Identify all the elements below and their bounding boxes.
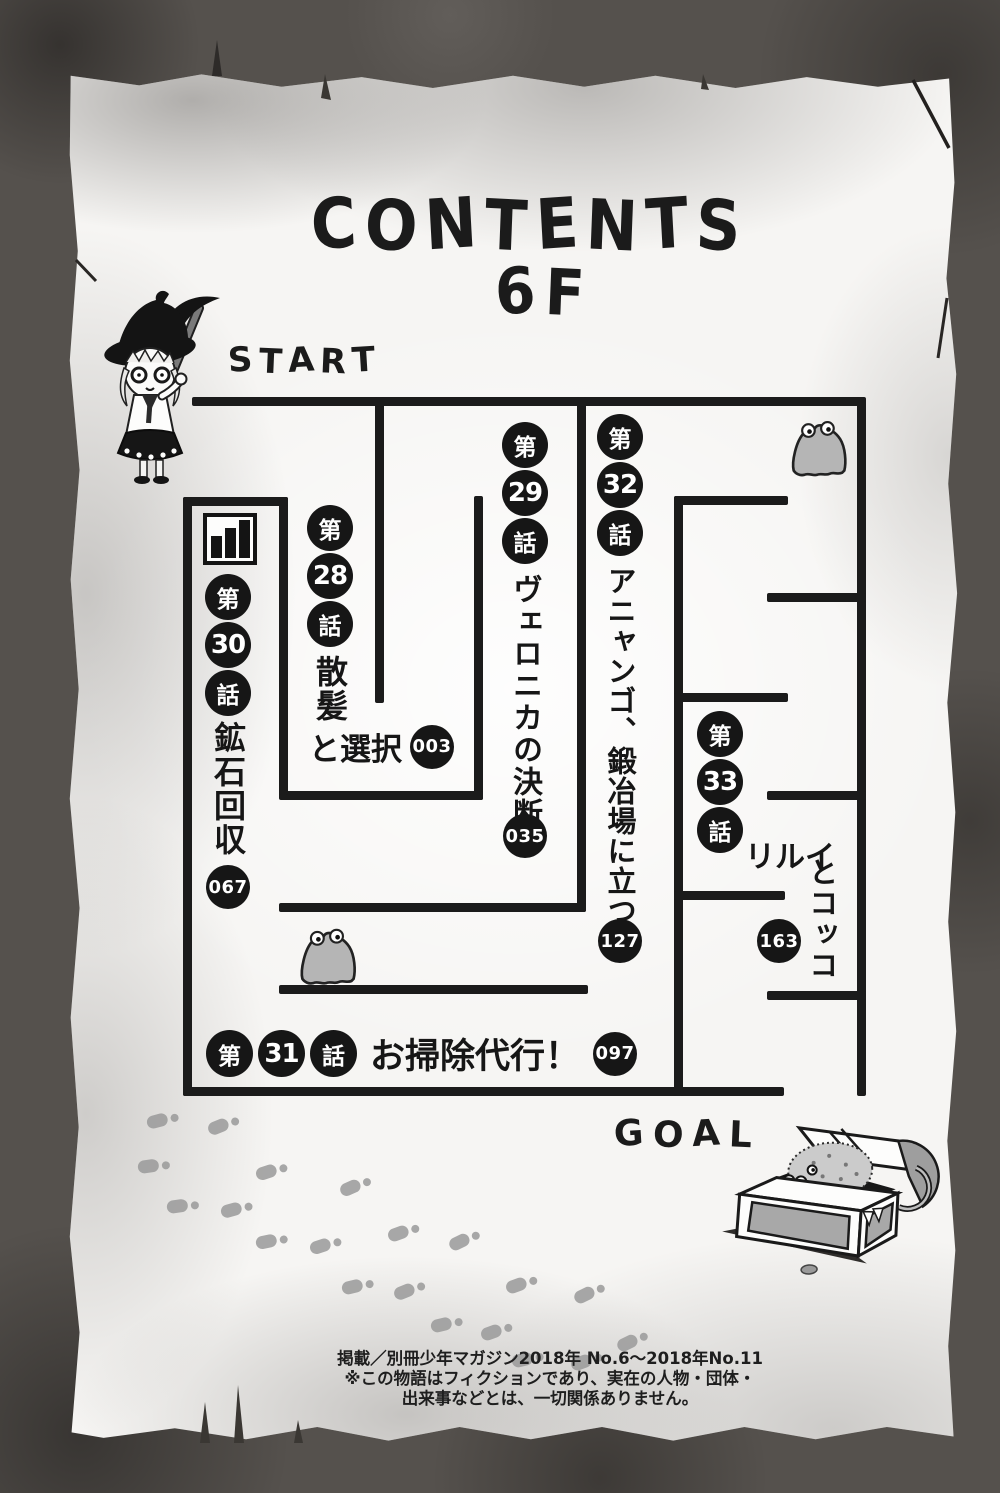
badge-number: 28 (307, 553, 353, 599)
badge-dai: 第 (307, 505, 353, 551)
fiction-disclaimer-line1: ※この物語はフィクションであり、実在の人物・団体・ (250, 1369, 850, 1389)
chapter-number-badges: 第 29 話 (502, 422, 548, 564)
chapter-number-badges: 第 30 話 (205, 574, 251, 716)
page-number-badge: 067 (206, 865, 250, 909)
badge-number: 30 (205, 622, 251, 668)
fiction-disclaimer-line2: 出来事などとは、一切関係ありません。 (250, 1389, 850, 1409)
maze-wall (279, 497, 288, 795)
slime-monster-icon (296, 926, 360, 988)
maze-wall (183, 1087, 784, 1096)
chapter-title-horizontal: と選択 (309, 724, 402, 769)
toc-entry-chapter-33[interactable]: 第 33 話 リルイ とコッコ 163 (697, 711, 857, 1031)
ore-bar (239, 520, 250, 558)
page-number-badge: 163 (757, 919, 801, 963)
badge-wa: 話 (205, 670, 251, 716)
ore-bar (211, 536, 222, 558)
chapter-title-vertical: 散髪 (314, 655, 346, 723)
badge-number: 32 (597, 462, 643, 508)
toc-entry-chapter-28[interactable]: 第 28 話 散髪 と選択 003 (305, 505, 475, 785)
contents-page: CONTENTS 6F START GOAL 第 28 話 散髪 と選択 003… (0, 0, 1000, 1493)
chapter-title-horizontal: お掃除代行！ (370, 1028, 580, 1079)
ore-bar (225, 528, 236, 558)
chapter-title-vertical: アニャンゴ、鍛冶場に立つ (605, 566, 634, 926)
page-number-badge: 127 (598, 919, 642, 963)
publication-note: 掲載／別冊少年マガジン2018年 No.6～2018年No.11 (250, 1349, 850, 1369)
disclaimer: 掲載／別冊少年マガジン2018年 No.6～2018年No.11 ※この物語はフ… (250, 1349, 850, 1408)
toc-entry-chapter-31[interactable]: 第 31 話 お掃除代行！ 097 (206, 1028, 637, 1079)
maze-wall (279, 791, 483, 800)
page-number-badge: 097 (593, 1032, 637, 1076)
maze-wall (279, 903, 586, 912)
toc-entry-chapter-29[interactable]: 第 29 話 ヴェロニカの決断 035 (500, 422, 560, 867)
maze-wall (577, 397, 586, 912)
badge-wa: 話 (310, 1030, 357, 1077)
chapter-title-vertical: ヴェロニカの決断 (509, 574, 539, 830)
maze-wall (674, 693, 788, 702)
maze-wall (474, 496, 483, 800)
chapter-title-vertical: 鉱石回収 (212, 721, 244, 857)
chapter-number-badges: 第 28 話 (307, 505, 353, 647)
start-label: START (228, 341, 381, 381)
badge-wa: 話 (597, 510, 643, 556)
maze-wall (183, 497, 192, 1096)
toc-entry-chapter-30[interactable]: 第 30 話 鉱石回収 067 (203, 513, 263, 918)
badge-dai: 第 (205, 574, 251, 620)
badge-number: 33 (697, 759, 743, 805)
chapter-number-badges: 第 33 話 (697, 711, 743, 853)
maze-wall (183, 497, 288, 506)
chapter-number-badges: 第 32 話 (597, 414, 643, 556)
badge-number: 31 (258, 1030, 305, 1077)
maze-wall (767, 593, 866, 602)
badge-wa: 話 (697, 807, 743, 853)
page-number-badge: 003 (410, 725, 454, 769)
chapter-title-vertical: とコッコ (807, 857, 836, 981)
badge-wa: 話 (502, 518, 548, 564)
badge-wa: 話 (307, 601, 353, 647)
badge-dai: 第 (597, 414, 643, 460)
page-number-badge: 035 (503, 814, 547, 858)
ore-bars-icon (203, 513, 257, 565)
toc-entry-chapter-32[interactable]: 第 32 話 アニャンゴ、鍛冶場に立つ 127 (595, 414, 655, 974)
witch-miner-character (100, 288, 238, 488)
treasure-chest-mimic (712, 1116, 944, 1276)
badge-dai: 第 (697, 711, 743, 757)
maze-wall (192, 397, 865, 406)
maze-wall (674, 496, 683, 1096)
slime-monster-icon (787, 420, 851, 478)
badge-number: 29 (502, 470, 548, 516)
badge-dai: 第 (206, 1030, 253, 1077)
maze-wall (674, 496, 788, 505)
badge-dai: 第 (502, 422, 548, 468)
